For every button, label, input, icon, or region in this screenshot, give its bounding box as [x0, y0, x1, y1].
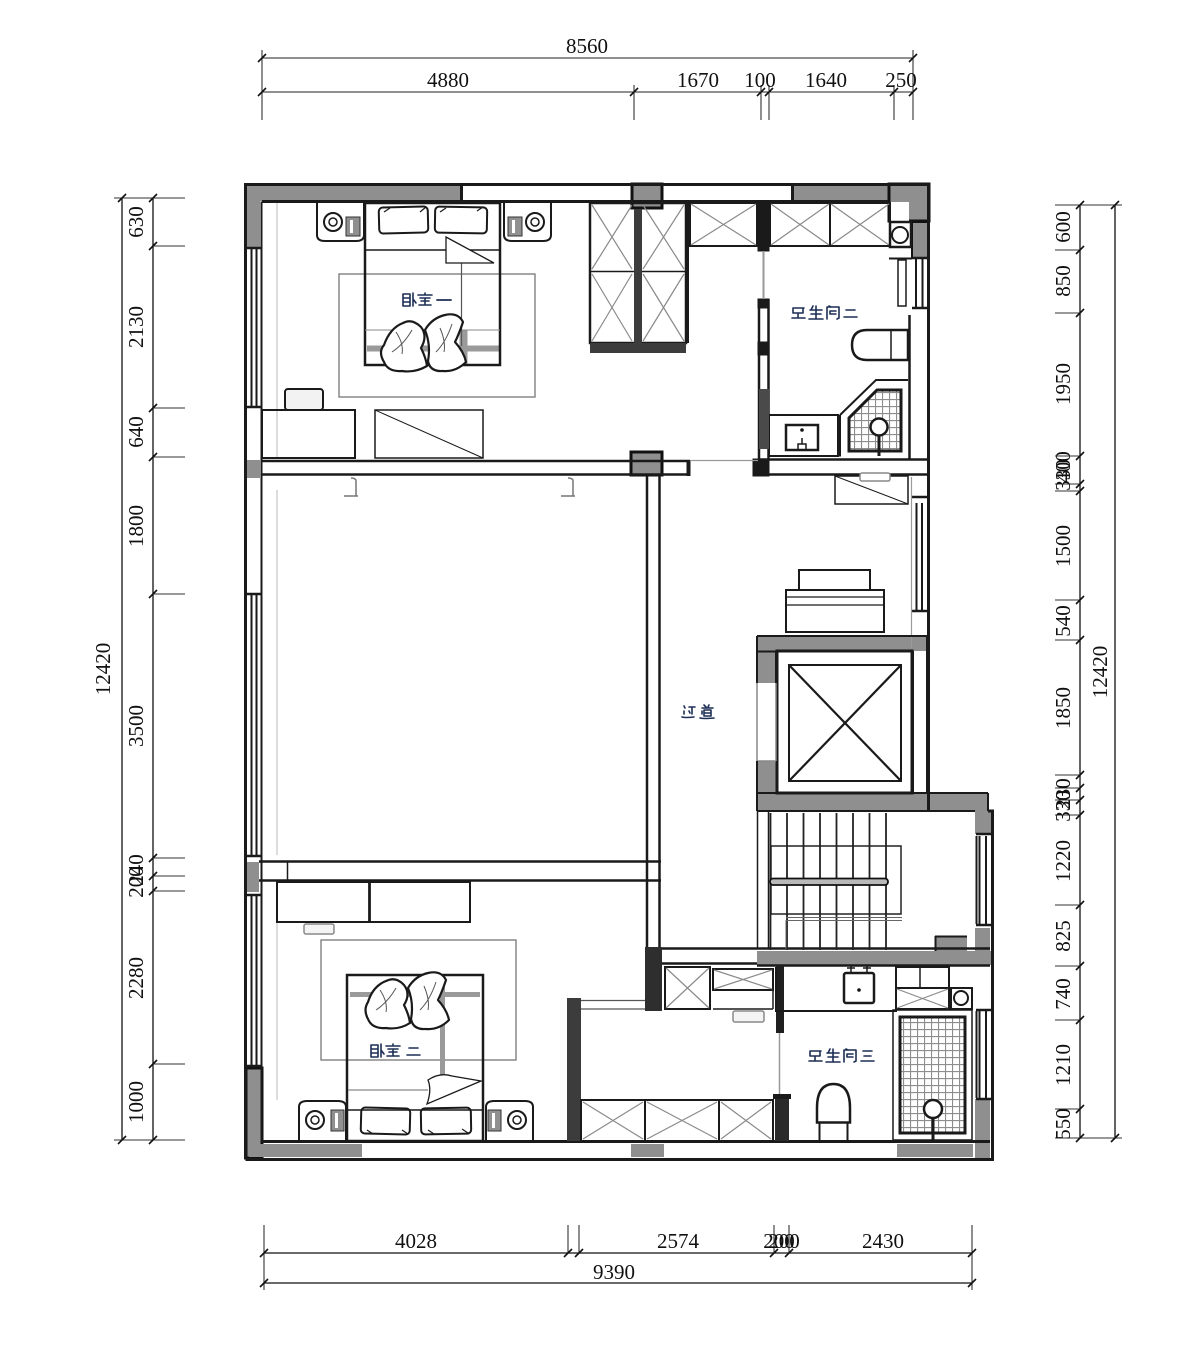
svg-text:630: 630 — [124, 206, 148, 238]
svg-text:2280: 2280 — [124, 957, 148, 999]
svg-text:1670: 1670 — [677, 68, 719, 92]
svg-text:2574: 2574 — [657, 1229, 700, 1253]
svg-text:8560: 8560 — [566, 34, 608, 58]
svg-text:1800: 1800 — [124, 505, 148, 547]
svg-text:3500: 3500 — [124, 705, 148, 747]
svg-text:12420: 12420 — [1088, 646, 1112, 699]
svg-text:12420: 12420 — [91, 643, 115, 696]
svg-text:740: 740 — [1051, 978, 1075, 1010]
svg-text:2130: 2130 — [124, 306, 148, 348]
svg-text:2430: 2430 — [862, 1229, 904, 1253]
svg-text:200: 200 — [124, 866, 148, 898]
svg-text:550: 550 — [1051, 1108, 1075, 1140]
svg-text:540: 540 — [1051, 605, 1075, 637]
svg-text:330: 330 — [1051, 790, 1075, 822]
svg-text:1640: 1640 — [805, 68, 847, 92]
svg-text:825: 825 — [1051, 920, 1075, 952]
svg-text:1210: 1210 — [1051, 1044, 1075, 1086]
svg-text:9390: 9390 — [593, 1260, 635, 1284]
svg-text:1950: 1950 — [1051, 363, 1075, 405]
svg-text:330: 330 — [1051, 459, 1075, 491]
svg-text:1220: 1220 — [1051, 840, 1075, 882]
svg-text:200: 200 — [768, 1229, 800, 1253]
svg-text:100: 100 — [744, 68, 776, 92]
svg-text:1500: 1500 — [1051, 525, 1075, 567]
svg-text:4028: 4028 — [395, 1229, 437, 1253]
svg-text:4880: 4880 — [427, 68, 469, 92]
svg-text:1850: 1850 — [1051, 687, 1075, 729]
svg-text:850: 850 — [1051, 265, 1075, 297]
svg-text:250: 250 — [885, 68, 917, 92]
svg-text:600: 600 — [1051, 211, 1075, 243]
svg-text:640: 640 — [124, 416, 148, 448]
svg-text:1000: 1000 — [124, 1081, 148, 1123]
